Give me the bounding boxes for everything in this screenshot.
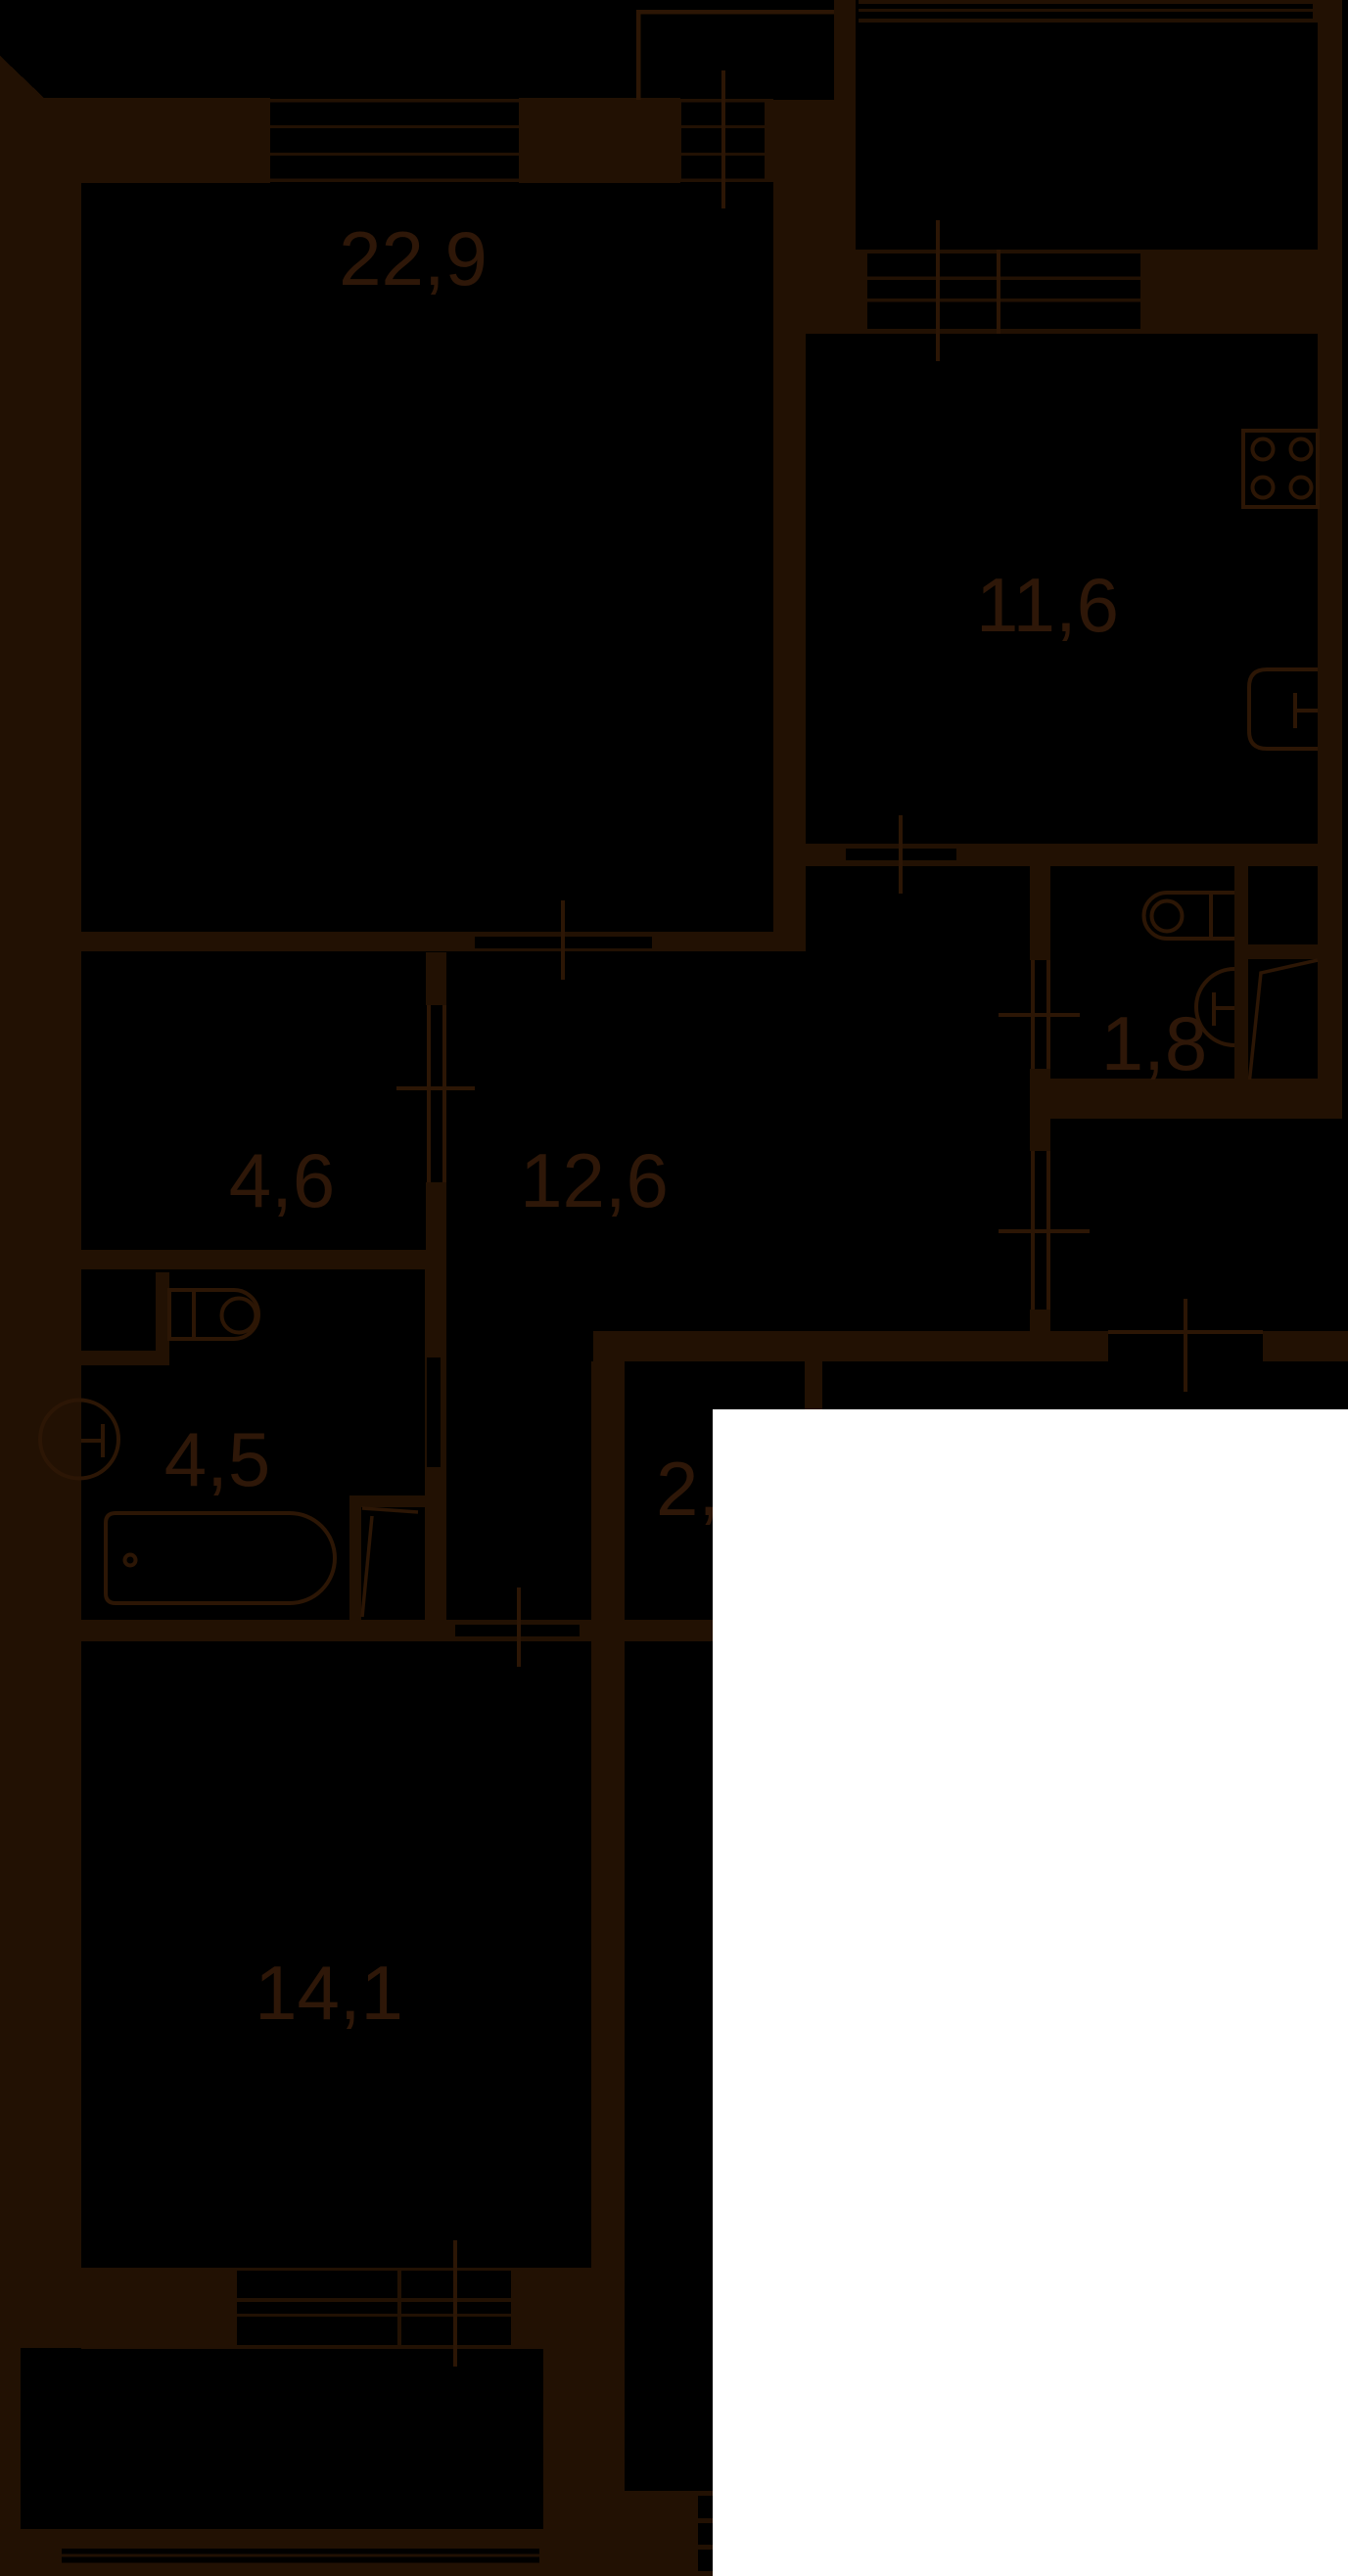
svg-text:22,9: 22,9 xyxy=(339,215,488,301)
svg-text:4,5: 4,5 xyxy=(164,1416,270,1502)
svg-text:14,1: 14,1 xyxy=(255,1950,403,2036)
svg-text:12,6: 12,6 xyxy=(520,1137,669,1223)
svg-text:4,6: 4,6 xyxy=(229,1137,335,1223)
svg-text:1,8: 1,8 xyxy=(1101,1000,1207,1086)
svg-text:11,6: 11,6 xyxy=(976,562,1119,648)
